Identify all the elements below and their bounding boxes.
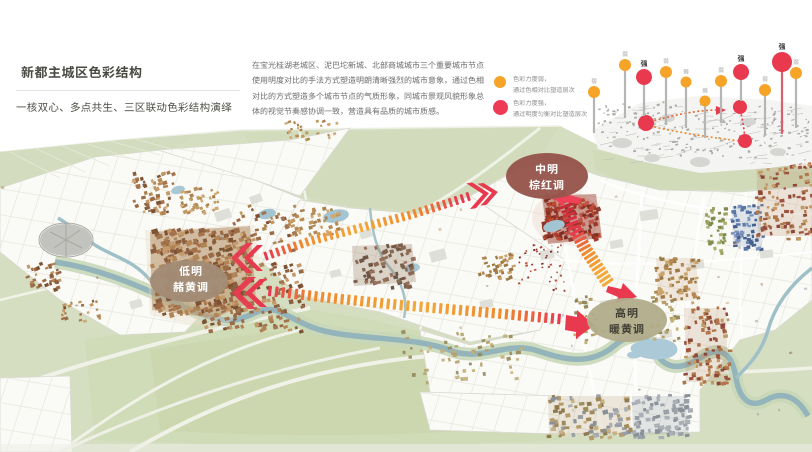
svg-text:弱: 弱 xyxy=(762,75,768,83)
svg-text:强: 强 xyxy=(779,42,786,52)
svg-text:弱: 弱 xyxy=(683,68,689,76)
svg-text:弱: 弱 xyxy=(622,50,628,58)
svg-text:低明: 低明 xyxy=(179,263,203,279)
svg-text:暖黄调: 暖黄调 xyxy=(609,321,645,337)
svg-text:强: 强 xyxy=(641,59,648,69)
svg-text:弱: 弱 xyxy=(663,57,669,65)
svg-text:弱: 弱 xyxy=(591,77,597,85)
svg-text:强: 强 xyxy=(738,54,745,64)
svg-text:弱: 弱 xyxy=(718,66,724,74)
svg-text:高明: 高明 xyxy=(615,305,639,321)
svg-text:弱: 弱 xyxy=(702,87,708,95)
svg-text:棕红调: 棕红调 xyxy=(529,177,565,193)
svg-text:赭黄调: 赭黄调 xyxy=(173,279,209,295)
svg-text:中明: 中明 xyxy=(535,161,559,177)
svg-text:弱: 弱 xyxy=(793,58,799,66)
